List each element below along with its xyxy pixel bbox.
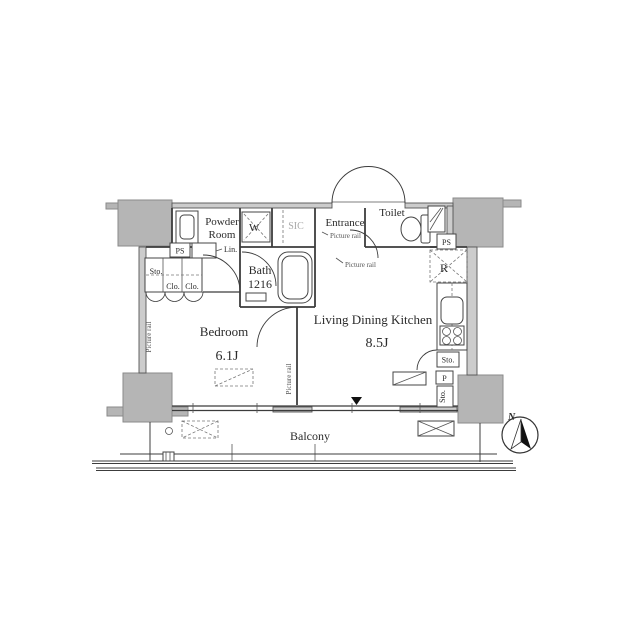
vanity-basin: [180, 215, 194, 239]
wall-stub-top-right: [503, 200, 521, 207]
bathtub-inner: [282, 256, 308, 299]
powder-room-label-1: Powder: [205, 216, 239, 228]
shoe-closet: SIC: [283, 210, 304, 245]
entrance-label: Entrance: [325, 217, 364, 229]
kitchen-sink: [441, 297, 463, 324]
floor-plan-page: Powder Room PS Lin. W SIC Entrance Pictu…: [0, 0, 640, 640]
north-label: N: [507, 412, 516, 423]
bedroom-size-label: 6.1J: [216, 349, 240, 364]
entrance-hall: Entrance Picture rail Picture rail: [322, 217, 378, 269]
column-top-left: [118, 200, 172, 246]
column-bottom-left: [123, 373, 172, 422]
powder-room-label-2: Room: [209, 229, 236, 241]
wall-stub-bottom-left-in: [172, 407, 188, 416]
picture-rail-divider: Picture rail: [285, 363, 293, 394]
picture-rail-ldk: Picture rail: [345, 261, 376, 269]
sic-label: SIC: [288, 221, 304, 232]
refrigerator-label: R: [440, 261, 448, 275]
column-bottom-right: [458, 375, 503, 423]
floor-plan: Powder Room PS Lin. W SIC Entrance Pictu…: [0, 0, 640, 640]
closet-label-2: Clo.: [185, 282, 199, 291]
washer-label: W: [249, 222, 260, 234]
sill-bottom-center: [273, 407, 312, 412]
north-compass: N: [502, 412, 538, 453]
sill-bottom-right: [400, 407, 457, 412]
balcony-label: Balcony: [290, 429, 330, 443]
closet-label-1: Clo.: [166, 282, 180, 291]
washer-bay: W: [242, 212, 270, 242]
toilet-room: Toilet PS: [379, 206, 456, 249]
lower-sto-label: Sto.: [438, 390, 447, 403]
pipe-space-label-right: PS: [442, 238, 451, 247]
closet-door-arc: [184, 292, 203, 302]
ldk-size-label: 8.5J: [366, 336, 390, 351]
picture-rail-entrance: Picture rail: [330, 232, 361, 240]
washroom-door: [257, 307, 297, 347]
ldk-label: Living Dining Kitchen: [314, 312, 433, 327]
picture-rail-left: Picture rail: [145, 321, 153, 352]
closet-sto-label: Sto.: [150, 267, 163, 276]
entrance-door: [332, 166, 405, 203]
bedroom-door: [203, 255, 240, 292]
bath-room: Bath 1216: [242, 252, 312, 303]
wall-top-left-segment: [172, 203, 332, 208]
bedroom-label: Bedroom: [200, 324, 248, 339]
powder-room: Powder Room PS Lin.: [170, 211, 239, 258]
storage-door: [417, 350, 437, 370]
kitchen-sto-label: Sto.: [442, 356, 455, 365]
closet-door-arc: [165, 292, 184, 302]
bath-label: Bath: [249, 263, 272, 277]
toilet-bowl: [401, 217, 421, 241]
balcony: Balcony: [92, 421, 516, 471]
pipe-space-label: PS: [176, 247, 185, 256]
living-dining-kitchen: Living Dining Kitchen 8.5J: [314, 312, 433, 385]
bedroom-closets: Sto. Clo. Clo.: [145, 258, 203, 302]
window-marker-triangle: [351, 397, 362, 405]
wall-stub-top-left: [106, 203, 118, 209]
bath-counter: [246, 293, 266, 301]
south-windows: [172, 397, 458, 413]
pantry-label: P: [442, 374, 447, 383]
column-top-right: [453, 198, 503, 247]
wall-stub-bottom-left-out: [107, 407, 123, 416]
wall-right: [467, 247, 477, 375]
toilet-label: Toilet: [379, 207, 405, 219]
bath-size-label: 1216: [248, 277, 272, 291]
drain-circle: [166, 428, 173, 435]
linen-label: Lin.: [224, 245, 237, 254]
closet-door-arc: [146, 292, 165, 302]
balcony-hatch-box: [163, 452, 174, 461]
